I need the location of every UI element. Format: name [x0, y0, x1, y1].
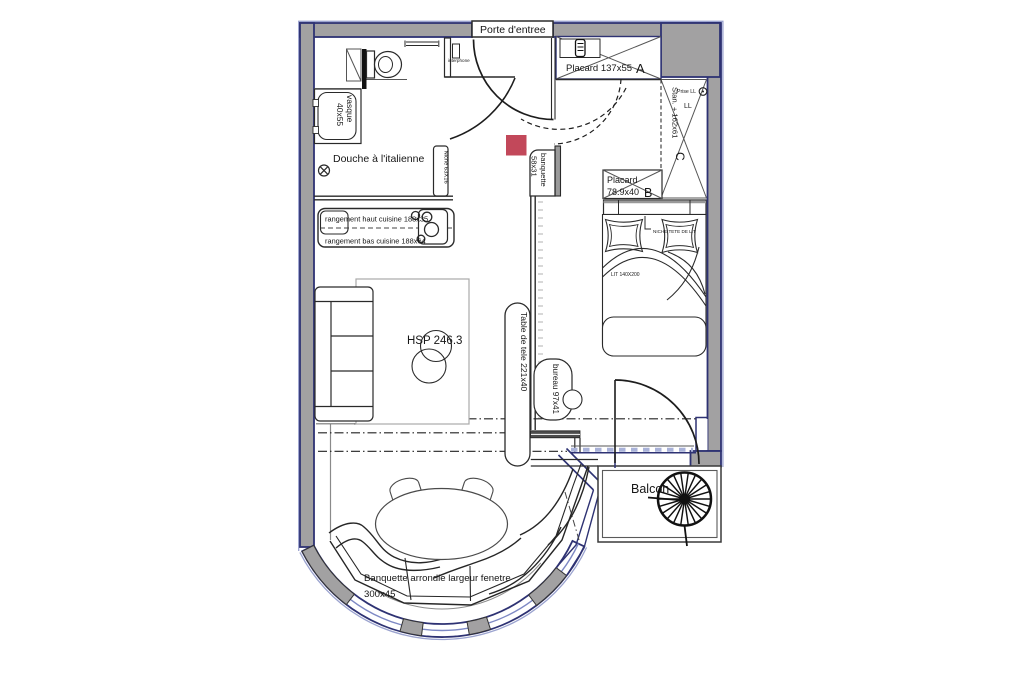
svg-text:LL: LL [684, 103, 692, 110]
svg-text:Placard 137x55: Placard 137x55 [566, 63, 632, 74]
svg-text:rangement bas cuisine 188x64: rangement bas cuisine 188x64 [325, 237, 426, 246]
svg-text:rangement haut cuisine 188x35: rangement haut cuisine 188x35 [325, 215, 428, 224]
svg-text:Banquette arrondie largeur fen: Banquette arrondie largeur fenetre [364, 573, 511, 584]
svg-text:HSP 246.3: HSP 246.3 [407, 335, 462, 347]
svg-text:Placard: Placard [607, 175, 638, 185]
svg-text:78.9x40: 78.9x40 [607, 187, 639, 197]
svg-text:interphone: interphone [448, 58, 470, 63]
svg-text:C: C [673, 152, 687, 161]
svg-text:LIT 140X200: LIT 140X200 [611, 272, 640, 278]
svg-text:A: A [636, 61, 645, 76]
svg-text:B: B [644, 186, 652, 200]
svg-text:Douche à l'italienne: Douche à l'italienne [333, 153, 424, 165]
svg-text:bureau 97x41: bureau 97x41 [551, 364, 560, 415]
svg-text:Porte d'entree: Porte d'entree [480, 24, 546, 36]
svg-text:300x45: 300x45 [364, 589, 395, 600]
svg-text:Table de tele 221x40: Table de tele 221x40 [519, 312, 529, 392]
svg-text:NICHE TETE DE LIT: NICHE TETE DE LIT [653, 229, 696, 234]
svg-text:Prise LL: Prise LL [677, 89, 696, 95]
svg-text:Niche 63X16: Niche 63X16 [443, 151, 449, 184]
